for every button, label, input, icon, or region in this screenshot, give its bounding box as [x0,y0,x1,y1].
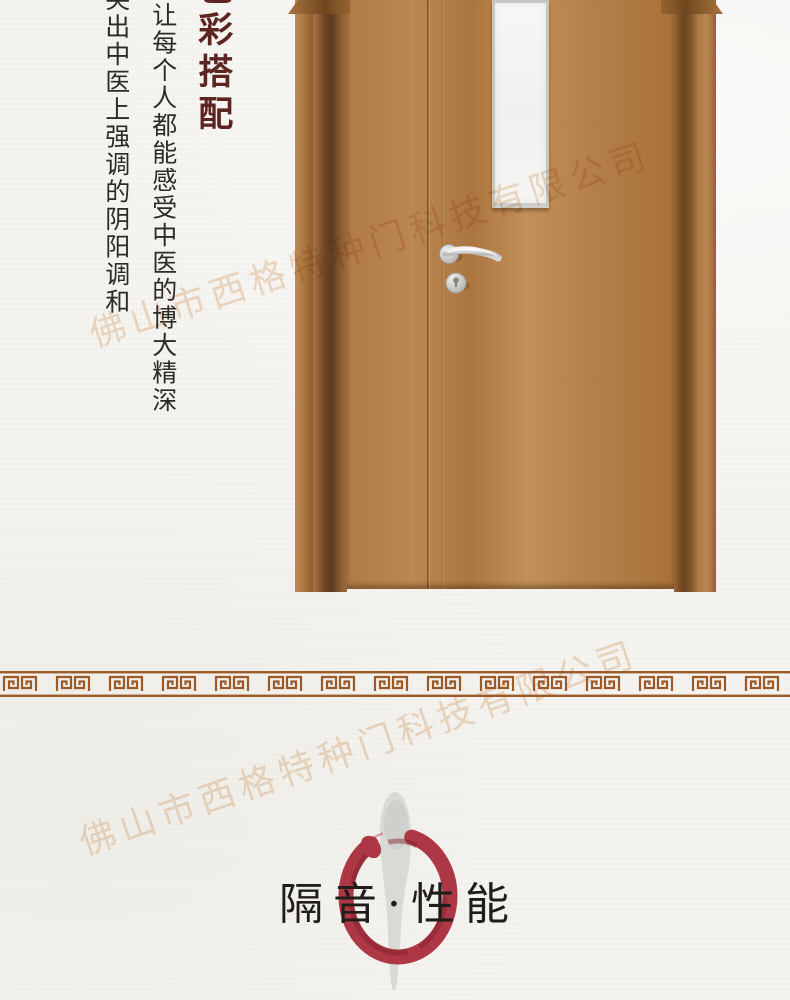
door-frame-right-stile [697,0,716,592]
door-frame-right-foot [661,0,723,14]
page: 色彩搭配 让每个人都能感受中医的博大精深 突出中医上强调的阴阳调和 [0,0,790,1000]
door-frame-right-reveal [674,0,697,592]
door-frame-left-reveal [313,0,347,592]
intro-text-line-1: 让每个人都能感受中医的博大精深 [148,2,177,415]
intro-vertical-title: 色彩搭配 [192,0,232,137]
door-frame-left-stile [295,0,313,592]
section-title: 隔音·性能 [0,882,790,928]
keyhole-icon [455,281,457,287]
door-product-image [295,0,716,605]
door-vision-glass-panel [492,0,549,208]
greek-key-divider [0,671,790,697]
intro-text-line-2: 突出中医上强调的阴阳调和 [101,0,130,316]
door-handle-and-lock-icon [430,235,510,307]
door-frame-left-foot [288,0,350,14]
